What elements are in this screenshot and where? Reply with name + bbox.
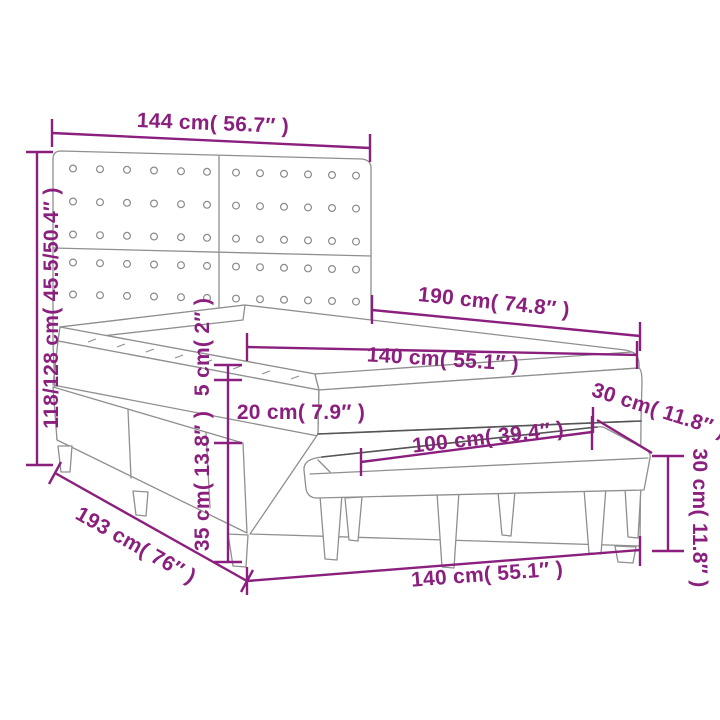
bench-leg-front-mid (437, 491, 459, 568)
headboard-button (281, 296, 288, 303)
headboard-button (124, 199, 131, 206)
headboard-button (329, 238, 336, 245)
headboard-button (233, 169, 240, 176)
headboard-button (233, 202, 240, 209)
headboard-button (329, 205, 336, 212)
headboard-button (329, 266, 336, 273)
headboard-button (233, 235, 240, 242)
headboard-button (97, 232, 104, 239)
product-dimension-image: 144 cm( 56.7″ ) 118/128 cm( 45.5/50.4″ )… (0, 0, 720, 720)
headboard-button (257, 236, 264, 243)
bed-leg-2 (133, 491, 148, 516)
headboard-button (257, 296, 264, 303)
headboard-button (329, 298, 336, 305)
dim-label-mattress-height: 20 cm( 7.9″ ) (237, 401, 365, 424)
headboard-button (305, 237, 312, 244)
headboard-button (178, 234, 185, 241)
headboard-button (70, 198, 77, 205)
headboard-button (233, 263, 240, 270)
headboard-button (204, 263, 211, 270)
bed-leg-1 (58, 446, 72, 472)
dim-label-base-height: 35 cm( 13.8″ ) (191, 411, 214, 551)
headboard-button (124, 261, 131, 268)
headboard-button (151, 293, 158, 300)
headboard-button (124, 232, 131, 239)
headboard-button (353, 205, 360, 212)
headboard-button (70, 165, 77, 172)
headboard-button (257, 264, 264, 271)
headboard-button (97, 292, 104, 299)
headboard-button (305, 171, 312, 178)
bed-leg-4 (615, 546, 636, 563)
headboard-button (204, 168, 211, 175)
headboard-button (353, 298, 360, 305)
bench-leg-back-right (625, 487, 641, 538)
bench-leg-front-left (320, 494, 342, 560)
headboard-button (305, 265, 312, 272)
headboard-button (70, 259, 77, 266)
headboard-button (97, 199, 104, 206)
dim-label-topper-height: 5 cm( 2″ ) (191, 298, 214, 396)
headboard-button (151, 167, 158, 174)
headboard-button (151, 233, 158, 240)
headboard-button (204, 201, 211, 208)
headboard-button (97, 260, 104, 267)
headboard-button (178, 294, 185, 301)
dim-label-headboard-width: 144 cm( 56.7″ ) (136, 109, 289, 138)
bed-dimension-diagram: 144 cm( 56.7″ ) 118/128 cm( 45.5/50.4″ )… (0, 0, 720, 720)
dim-label-bench-height: 30 cm( 11.8″ ) (688, 448, 711, 587)
headboard-button (151, 261, 158, 268)
headboard-button (178, 168, 185, 175)
headboard-button (124, 293, 131, 300)
headboard-button (281, 170, 288, 177)
headboard-button (353, 266, 360, 273)
headboard-button (353, 238, 360, 245)
headboard-button (204, 234, 211, 241)
headboard-button (353, 172, 360, 179)
headboard-button (281, 203, 288, 210)
headboard-button (178, 201, 185, 208)
headboard-button (329, 172, 336, 179)
headboard-button (151, 200, 158, 207)
headboard-button (70, 291, 77, 298)
headboard-button (257, 203, 264, 210)
headboard-button (233, 295, 240, 302)
headboard-button (257, 170, 264, 177)
headboard-button (281, 236, 288, 243)
headboard-button (305, 204, 312, 211)
headboard-button (178, 262, 185, 269)
headboard-button (70, 231, 77, 238)
headboard-button (97, 166, 104, 173)
dim-label-height-range: 118/128 cm( 45.5/50.4″ ) (40, 187, 63, 428)
headboard-button (281, 264, 288, 271)
headboard-button (124, 166, 131, 173)
headboard-button (305, 297, 312, 304)
dim-label-bed-width: 140 cm( 55.1″ ) (410, 557, 564, 591)
